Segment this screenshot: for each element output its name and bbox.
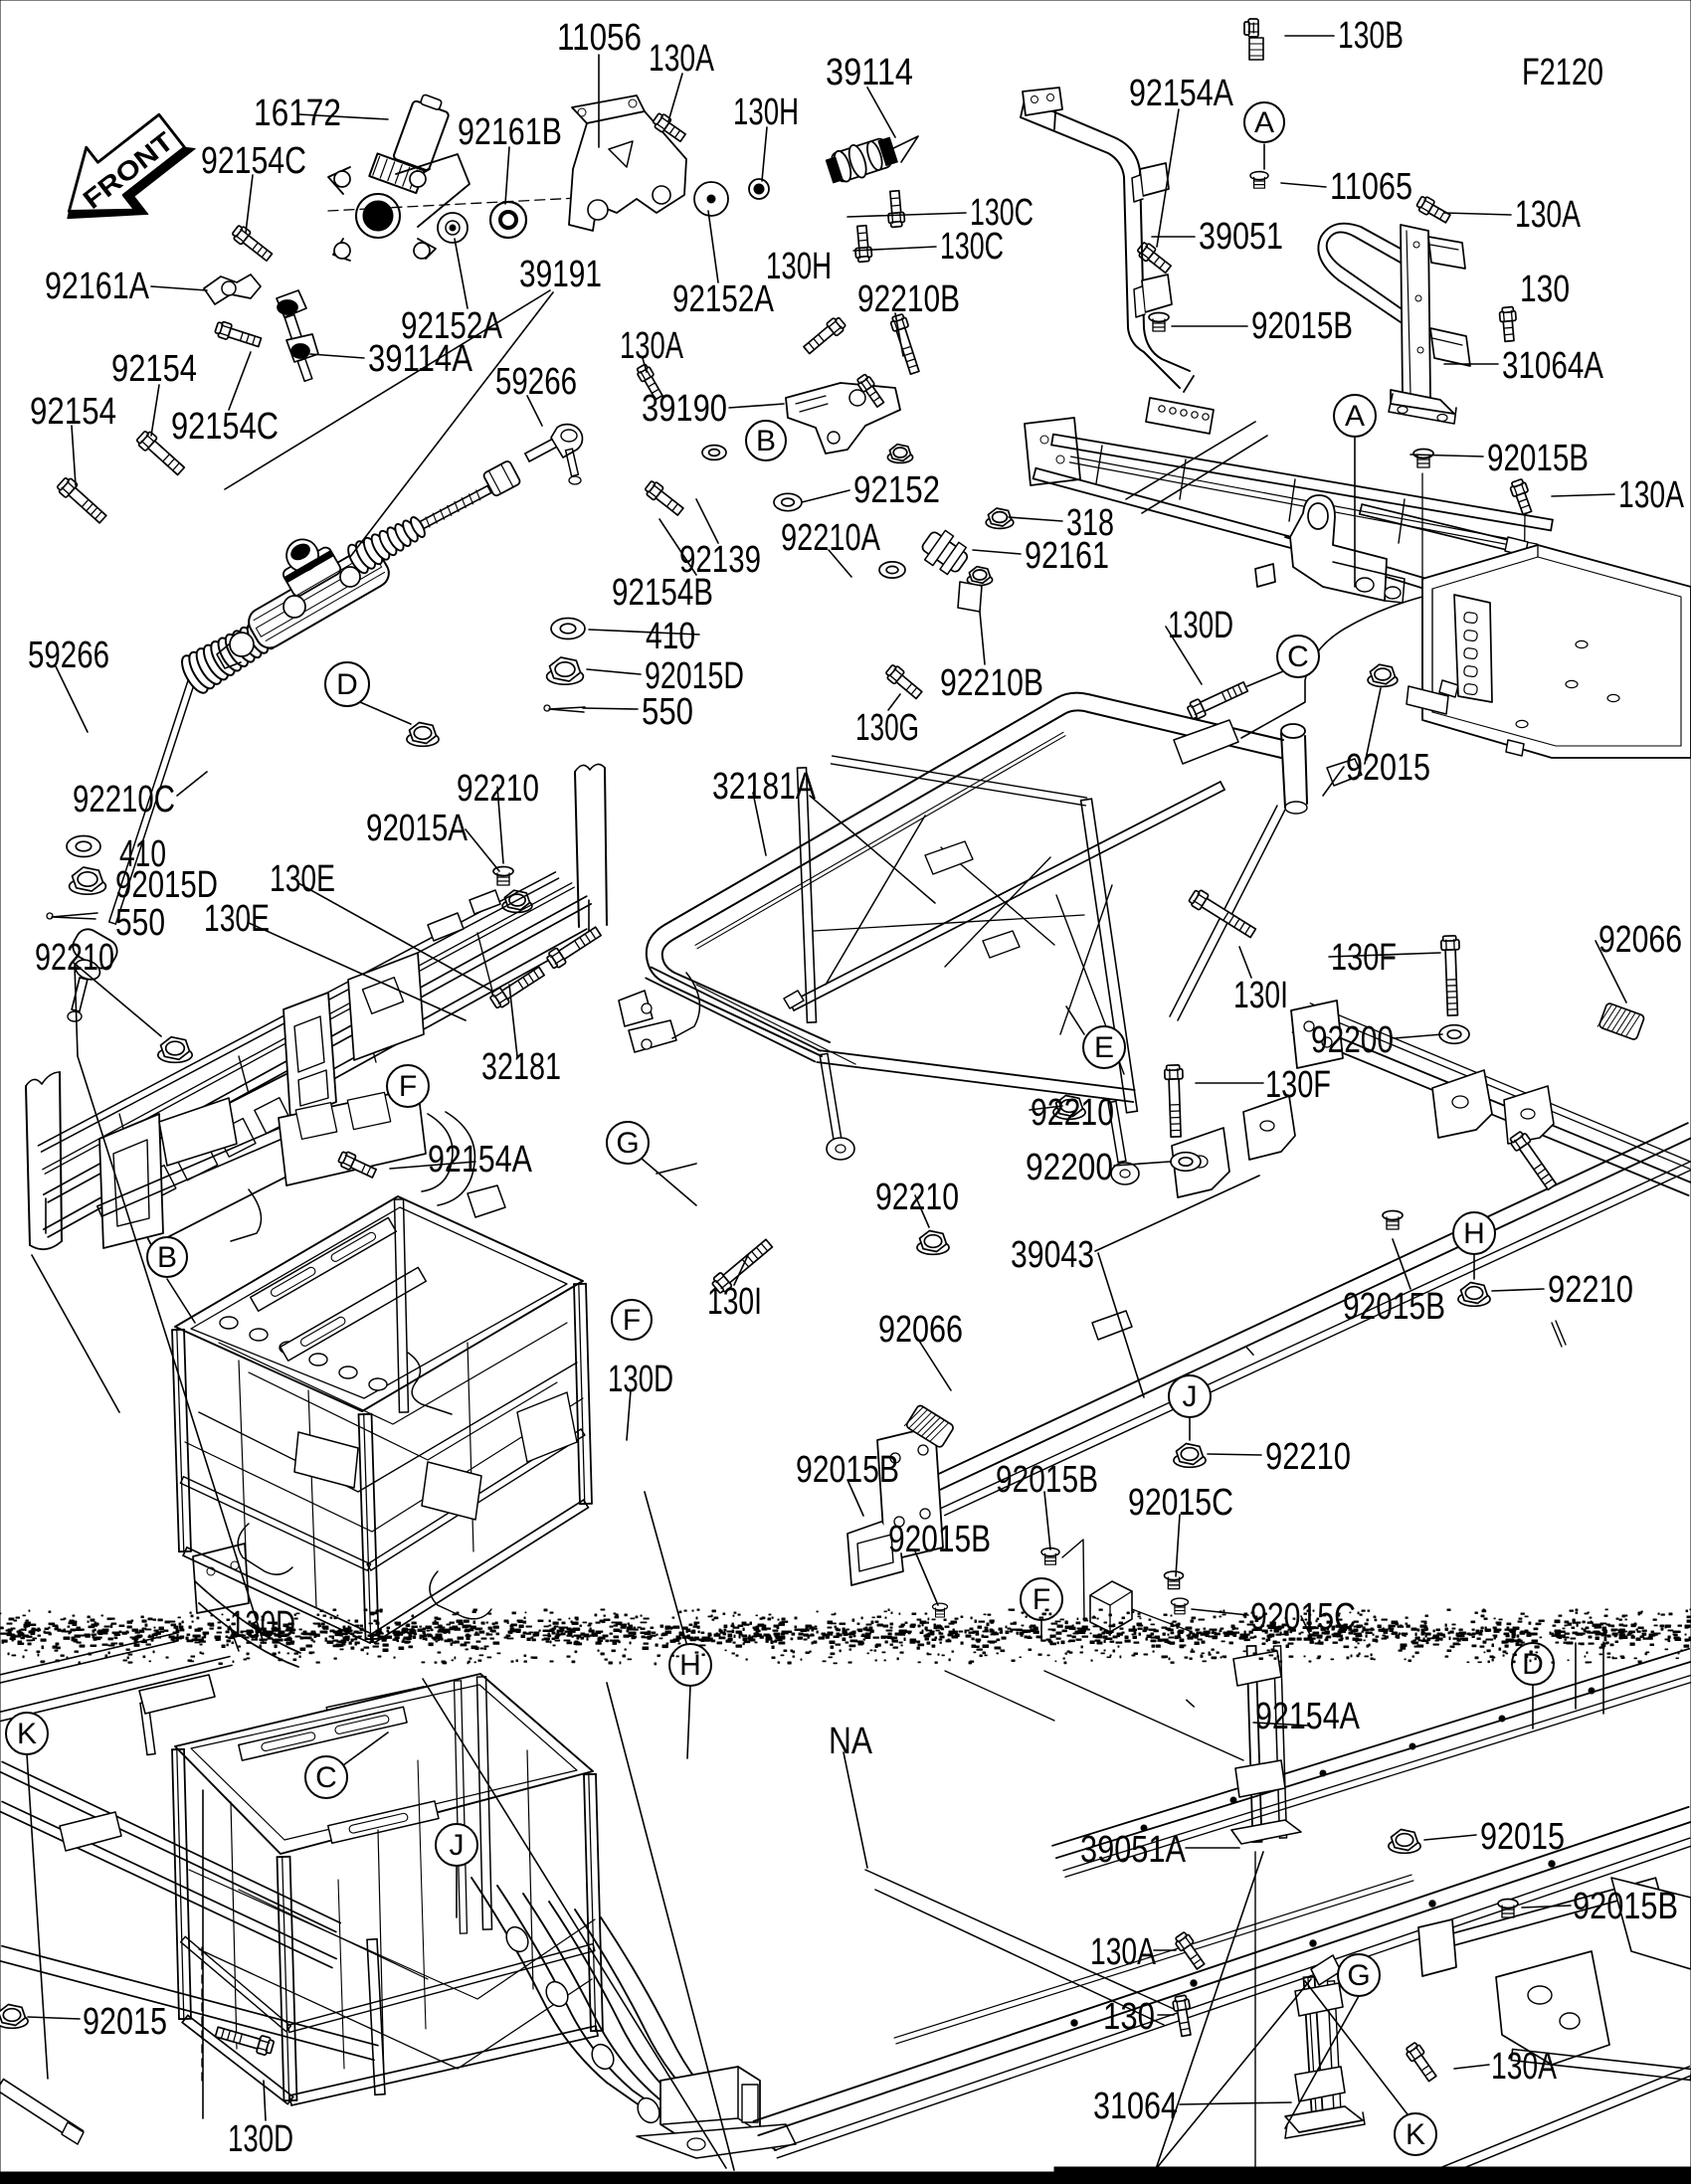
- svg-text:39114: 39114: [826, 52, 913, 93]
- svg-text:A: A: [1254, 106, 1274, 139]
- svg-text:130C: 130C: [940, 226, 1004, 268]
- svg-text:92015: 92015: [1480, 1816, 1565, 1858]
- svg-text:59266: 59266: [28, 635, 109, 676]
- svg-text:39051: 39051: [1199, 216, 1283, 258]
- svg-text:130A: 130A: [1515, 194, 1581, 236]
- svg-text:92154A: 92154A: [1129, 73, 1234, 114]
- svg-text:39051A: 39051A: [1080, 1829, 1187, 1871]
- svg-text:A: A: [1345, 400, 1365, 433]
- svg-text:92154: 92154: [111, 348, 197, 390]
- svg-text:130E: 130E: [270, 858, 335, 900]
- svg-text:92154: 92154: [30, 391, 116, 433]
- svg-text:92200: 92200: [1311, 1019, 1394, 1061]
- svg-text:31064A: 31064A: [1502, 345, 1604, 387]
- svg-text:39043: 39043: [1011, 1234, 1094, 1276]
- svg-text:92210B: 92210B: [857, 278, 960, 320]
- svg-text:130D: 130D: [1168, 605, 1233, 646]
- svg-text:39191: 39191: [519, 254, 602, 295]
- svg-text:92152: 92152: [853, 469, 940, 511]
- svg-text:K: K: [1406, 2118, 1425, 2151]
- svg-text:92015: 92015: [1346, 747, 1430, 789]
- svg-text:11065: 11065: [1330, 166, 1412, 208]
- svg-text:130G: 130G: [855, 707, 919, 749]
- svg-text:92015B: 92015B: [888, 1519, 991, 1560]
- svg-text:130I: 130I: [1233, 975, 1288, 1016]
- svg-text:92161A: 92161A: [45, 266, 150, 307]
- svg-text:130A: 130A: [620, 325, 683, 367]
- svg-text:J: J: [450, 1829, 465, 1862]
- svg-text:92210A: 92210A: [781, 517, 880, 559]
- svg-text:C: C: [1287, 640, 1309, 673]
- svg-text:92015B: 92015B: [796, 1449, 899, 1491]
- svg-text:K: K: [17, 1718, 37, 1750]
- svg-text:E: E: [1094, 1031, 1114, 1064]
- svg-text:11056: 11056: [557, 17, 642, 59]
- svg-text:130F: 130F: [1265, 1064, 1331, 1106]
- svg-text:92210C: 92210C: [73, 779, 175, 820]
- svg-text:NA: NA: [829, 1721, 873, 1762]
- svg-text:92210: 92210: [1548, 1269, 1633, 1311]
- svg-text:130H: 130H: [766, 246, 832, 287]
- svg-text:92066: 92066: [878, 1309, 963, 1351]
- svg-text:92015B: 92015B: [1573, 1886, 1678, 1927]
- svg-text:H: H: [1463, 1217, 1485, 1250]
- svg-text:130: 130: [1520, 269, 1570, 310]
- svg-text:92154A: 92154A: [428, 1139, 533, 1181]
- svg-text:410: 410: [646, 616, 695, 657]
- svg-text:92015C: 92015C: [1128, 1482, 1233, 1524]
- svg-text:92154A: 92154A: [1255, 1696, 1361, 1737]
- svg-text:92015B: 92015B: [1487, 438, 1589, 479]
- svg-text:130A: 130A: [1618, 474, 1684, 516]
- svg-text:130B: 130B: [1338, 15, 1404, 57]
- svg-text:130I: 130I: [707, 1281, 762, 1323]
- svg-text:92015: 92015: [83, 2001, 167, 2043]
- svg-text:130H: 130H: [733, 91, 799, 133]
- svg-text:92210B: 92210B: [940, 662, 1043, 704]
- svg-text:550: 550: [642, 691, 693, 733]
- svg-text:92015A: 92015A: [366, 808, 469, 849]
- svg-text:D: D: [336, 668, 358, 701]
- svg-text:92210: 92210: [1265, 1436, 1351, 1478]
- svg-text:32181A: 32181A: [712, 766, 817, 808]
- svg-text:92152A: 92152A: [672, 278, 775, 320]
- svg-text:92015B: 92015B: [1251, 305, 1353, 347]
- svg-text:D: D: [1522, 1648, 1544, 1681]
- svg-text:130A: 130A: [1491, 2046, 1557, 2088]
- svg-text:92210: 92210: [875, 1177, 959, 1218]
- svg-text:32181: 32181: [481, 1046, 561, 1088]
- svg-text:92066: 92066: [1598, 919, 1682, 961]
- svg-text:39114A: 39114A: [368, 338, 473, 380]
- svg-text:130E: 130E: [204, 898, 270, 940]
- svg-text:130D: 130D: [608, 1359, 673, 1400]
- svg-text:H: H: [679, 1649, 701, 1682]
- svg-text:130: 130: [1103, 1996, 1155, 2038]
- svg-text:G: G: [1347, 1959, 1370, 1992]
- svg-text:130A: 130A: [649, 38, 714, 80]
- svg-text:92161B: 92161B: [458, 111, 562, 153]
- svg-text:B: B: [756, 425, 776, 457]
- svg-text:92161: 92161: [1025, 535, 1109, 577]
- svg-text:C: C: [315, 1761, 337, 1794]
- svg-text:92154B: 92154B: [612, 572, 713, 614]
- svg-text:B: B: [157, 1241, 177, 1274]
- svg-text:F2120: F2120: [1522, 52, 1603, 93]
- svg-text:J: J: [1183, 1380, 1198, 1413]
- svg-text:92015D: 92015D: [115, 864, 218, 906]
- svg-text:92154C: 92154C: [201, 140, 306, 182]
- svg-text:550: 550: [115, 902, 165, 944]
- svg-text:130F: 130F: [1331, 937, 1397, 979]
- svg-text:92210: 92210: [457, 768, 539, 810]
- svg-text:59266: 59266: [495, 361, 577, 403]
- svg-text:130A: 130A: [1090, 1931, 1156, 1973]
- svg-text:92015B: 92015B: [996, 1459, 1098, 1501]
- svg-text:92210: 92210: [1031, 1092, 1114, 1134]
- svg-text:F: F: [399, 1070, 417, 1103]
- svg-text:130D: 130D: [228, 2118, 293, 2160]
- svg-text:F: F: [623, 1304, 641, 1337]
- svg-text:92154C: 92154C: [171, 406, 279, 448]
- svg-text:92210: 92210: [35, 937, 114, 979]
- svg-text:G: G: [616, 1127, 639, 1160]
- svg-text:16172: 16172: [254, 92, 341, 134]
- svg-text:92015B: 92015B: [1343, 1286, 1445, 1328]
- svg-text:92200: 92200: [1026, 1147, 1113, 1188]
- svg-text:31064: 31064: [1093, 2086, 1178, 2127]
- svg-text:39190: 39190: [642, 388, 727, 430]
